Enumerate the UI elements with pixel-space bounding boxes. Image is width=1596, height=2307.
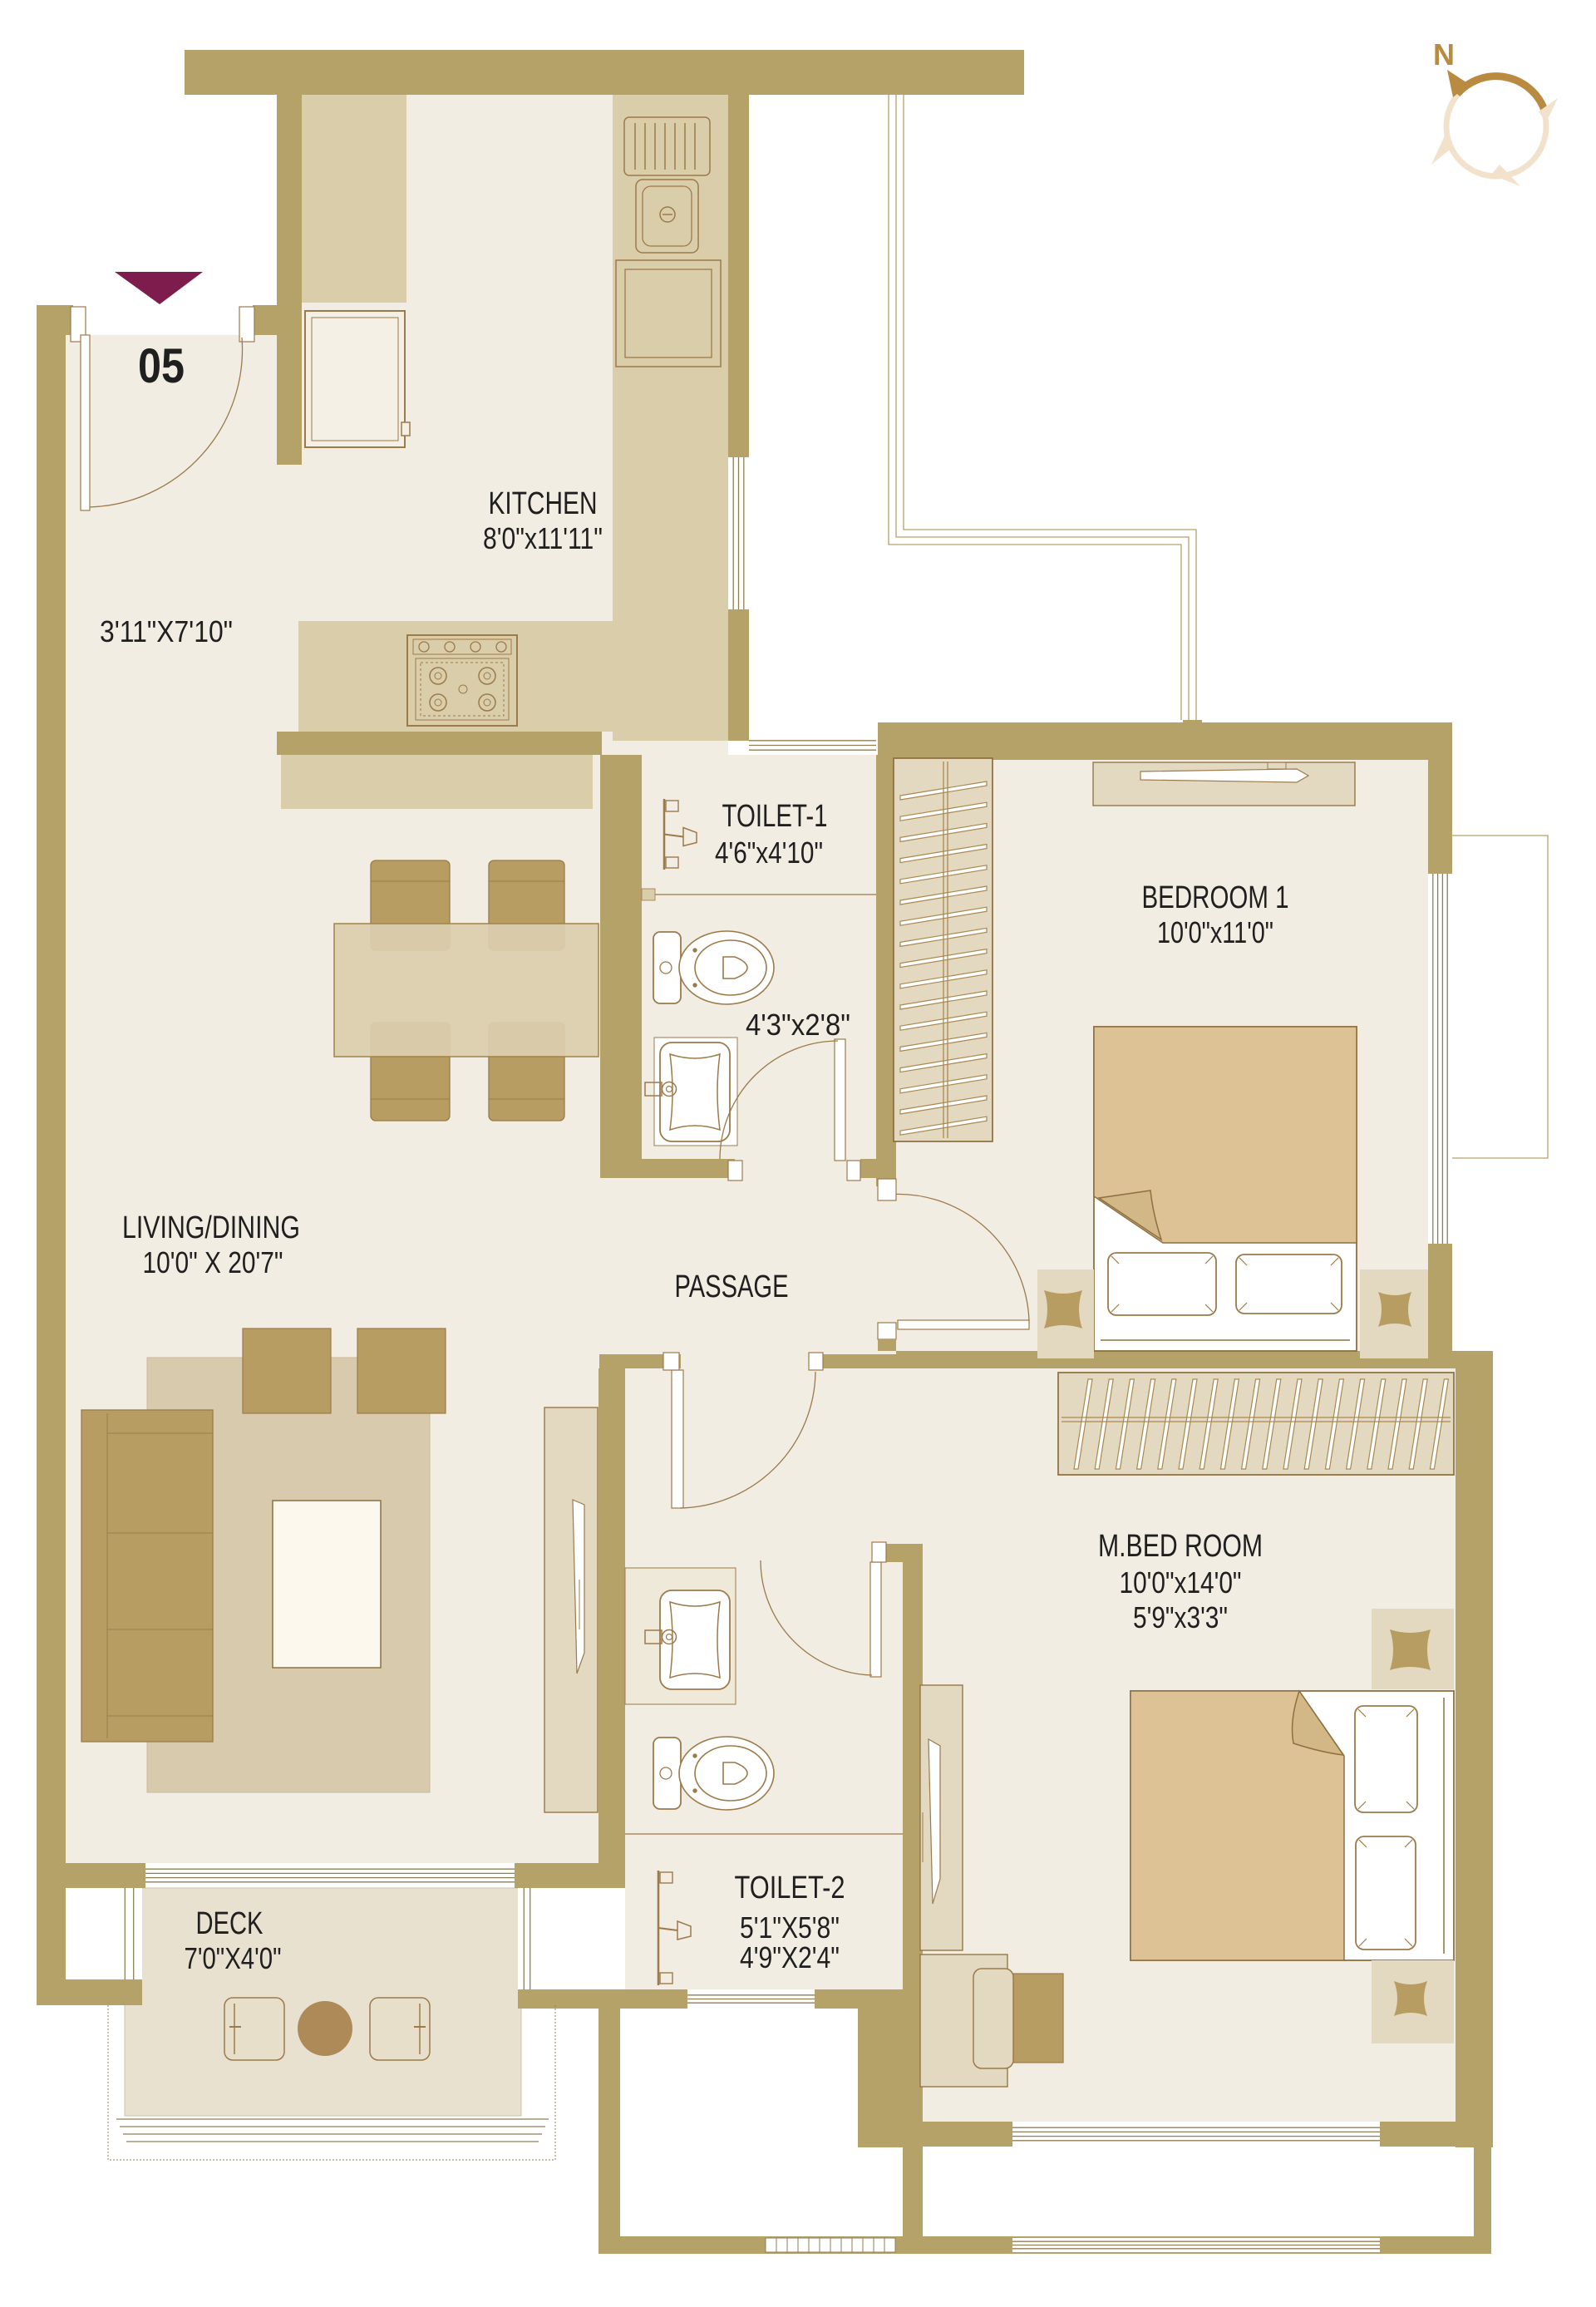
svg-text:10'0" X 20'7": 10'0" X 20'7" xyxy=(143,1245,283,1279)
svg-text:DECK: DECK xyxy=(196,1906,264,1941)
svg-text:10'0"x11'0": 10'0"x11'0" xyxy=(1157,915,1273,949)
svg-text:BEDROOM 1: BEDROOM 1 xyxy=(1142,880,1289,915)
svg-text:05: 05 xyxy=(138,339,185,393)
svg-text:M.BED ROOM: M.BED ROOM xyxy=(1098,1529,1263,1564)
svg-text:8'0"x11'11": 8'0"x11'11" xyxy=(483,521,603,555)
svg-text:TOILET-1: TOILET-1 xyxy=(722,799,828,834)
svg-text:10'0"x14'0": 10'0"x14'0" xyxy=(1120,1565,1242,1600)
svg-text:5'9"x3'3": 5'9"x3'3" xyxy=(1133,1600,1228,1634)
svg-text:PASSAGE: PASSAGE xyxy=(675,1269,789,1304)
svg-text:4'9"X2'4": 4'9"X2'4" xyxy=(740,1940,840,1974)
svg-text:7'0"X4'0": 7'0"X4'0" xyxy=(185,1941,282,1975)
svg-text:4'6"x4'10": 4'6"x4'10" xyxy=(715,836,823,870)
svg-text:LIVING/DINING: LIVING/DINING xyxy=(122,1210,300,1245)
svg-text:4'3"x2'8": 4'3"x2'8" xyxy=(746,1008,850,1042)
svg-text:3'11"X7'10": 3'11"X7'10" xyxy=(100,614,233,648)
svg-text:5'1"X5'8": 5'1"X5'8" xyxy=(740,1910,840,1945)
svg-text:TOILET-2: TOILET-2 xyxy=(735,1871,845,1905)
svg-text:KITCHEN: KITCHEN xyxy=(489,486,598,521)
svg-text:N: N xyxy=(1433,37,1455,71)
